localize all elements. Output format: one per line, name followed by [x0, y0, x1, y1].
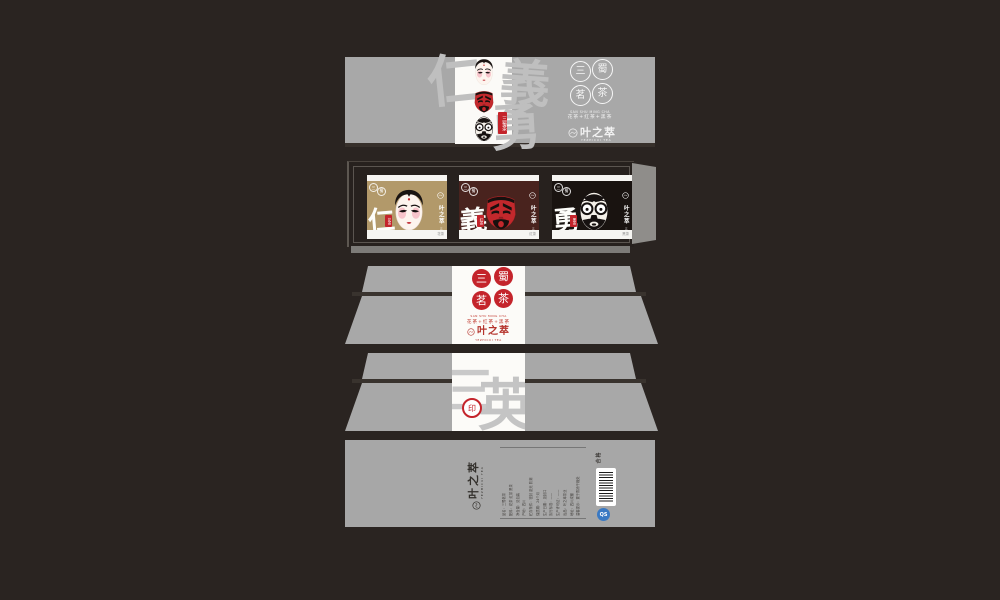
tray-right-side — [632, 163, 656, 244]
brand-seal-icon: 茶 — [494, 289, 513, 308]
corner-seal-icon: 蜀 — [562, 187, 571, 196]
fine-print-line: 出品：叶之萃茶业 — [562, 450, 569, 516]
sleeve-brand-block: 三 蜀 茗 茶 SAN SHU MING CHA 花茶+红茶+黑茶 叶之萃 YE… — [564, 61, 650, 142]
sleeve-panel: 仁 義 勇 三蜀茶 三 蜀 茗 茶 SAN SHU MING CHA 花茶+红茶… — [345, 57, 655, 144]
brand-ring-icon — [622, 192, 629, 199]
box-back-label-strip: 三 英 印 — [452, 353, 525, 431]
corner-seal-icon: 蜀 — [469, 187, 478, 196]
fine-print-block: 品名：三蜀茗茶 配料：花茶 红茶 黑茶 净含量：见包装 产地：四川 贮存条件：密… — [500, 447, 586, 519]
brand-logo-name: 叶之萃 — [468, 460, 479, 499]
brand-seal-icon: 三 — [472, 269, 491, 288]
fine-print-line: 执行标准：—— — [548, 450, 555, 516]
tea-card-black-tea: 三 蜀 義 红茶 叶之萃 三蜀茗茶 红茶 — [459, 175, 539, 239]
watermark-character: 英 — [478, 361, 525, 431]
rotated-brand-logo: 叶之萃 YEZHICUI TEA — [463, 452, 489, 510]
brand-seal-grid: 三 蜀 茗 茶 — [570, 61, 611, 106]
brand-seal-icon: 茗 — [472, 291, 491, 310]
card-footer-text: 黑茶 — [622, 233, 629, 236]
card-body: 三 蜀 勇 黑茶 叶之萃 三蜀茗茶 — [552, 181, 632, 230]
tea-card-flower: 三 蜀 仁 花茶 叶之萃 三蜀茗茶 花茶 — [367, 175, 447, 239]
card-body: 三 蜀 義 红茶 叶之萃 三蜀茗茶 — [459, 181, 539, 230]
brand-logo-name: 叶之萃 — [622, 205, 628, 225]
brand-logo-name: 叶之萃 — [437, 205, 443, 225]
fine-print-line: 保质期：24个月 — [535, 450, 542, 516]
brand-logo-subtext: YEZHICUI TEA — [581, 139, 650, 142]
opera-mask-zhang-icon — [470, 114, 498, 142]
brand-ring-icon — [529, 192, 536, 199]
card-bottom-strip: 红茶 — [459, 230, 539, 239]
fine-print-line: 贮存条件：密封 避光 防潮 — [528, 450, 535, 516]
tea-type-seal: 红茶 — [477, 215, 484, 227]
fine-print-line: 品名：三蜀茗茶 — [501, 450, 508, 516]
brand-seal-icon: 茶 — [592, 83, 613, 104]
red-stamp-icon: 印 — [462, 398, 482, 418]
fine-print-line: 温馨提示：置于阴凉干燥处 — [575, 450, 582, 516]
brand-logo-name: 叶之萃 — [529, 205, 535, 225]
corner-seal-icon: 蜀 — [377, 187, 386, 196]
card-brand-side: 叶之萃 三蜀茗茶 — [620, 184, 630, 230]
brand-logo-name: 叶之萃 — [477, 327, 510, 337]
series-teas-text: 花茶+红茶+黑茶 — [564, 115, 616, 122]
brand-seal-icon: 茗 — [570, 85, 591, 106]
tray-panel: 三 蜀 仁 花茶 叶之萃 三蜀茗茶 花茶 三 蜀 義 — [347, 161, 634, 247]
vertical-red-tag: 三蜀茶 — [498, 112, 507, 134]
brand-ring-icon — [467, 328, 475, 336]
cert-stamp: 合格 — [596, 450, 613, 465]
brand-logo-name: 叶之萃 — [580, 127, 616, 138]
card-footer-text: 红茶 — [529, 233, 536, 236]
barcode — [596, 468, 616, 506]
fine-print-line: 生产日期：见封口 — [542, 450, 549, 516]
opera-mask-dan-icon — [470, 58, 498, 86]
card-body: 三 蜀 仁 花茶 叶之萃 三蜀茗茶 — [367, 181, 447, 230]
packaging-design-canvas: 仁 義 勇 三蜀茶 三 蜀 茗 茶 SAN SHU MING CHA 花茶+红茶… — [0, 0, 1000, 600]
card-brand-side: 叶之萃 三蜀茗茶 — [527, 184, 537, 230]
tea-type-seal: 黑茶 — [570, 215, 577, 227]
tea-type-seal: 花茶 — [385, 215, 392, 227]
box-bottom-panel: 叶之萃 YEZHICUI TEA 品名：三蜀茗茶 配料：花茶 红茶 黑茶 净含量… — [345, 440, 655, 527]
barcode-bars — [599, 472, 613, 502]
series-latin-text: SAN SHU MING CHA — [564, 110, 616, 114]
box-front-label-strip: 三 蜀 茗 茶 SAN SHU MING CHA 花茶+红茶+黑茶 叶之萃 YE… — [452, 266, 525, 344]
fine-print-line: 地址：四川成都 — [569, 450, 576, 516]
brand-logo-subtext: YEZHICUI TEA — [480, 460, 484, 499]
tray-front-edge — [351, 246, 630, 253]
brand-seal-icon: 蜀 — [592, 59, 613, 80]
fine-print-line: 生产许可证：—— — [555, 450, 562, 516]
series-teas-text: 花茶+红茶+黑茶 — [452, 319, 525, 325]
fine-print-line: 配料：花茶 红茶 黑茶 — [508, 450, 515, 516]
brand-logo-subtext: YEZHICUI TEA — [452, 338, 525, 342]
card-bottom-strip: 黑茶 — [552, 230, 632, 239]
brand-ring-icon — [472, 501, 481, 510]
qs-mark-icon: QS — [597, 508, 610, 521]
fine-print-line: 产地：四川 — [521, 450, 528, 516]
brand-seal-icon: 三 — [570, 61, 591, 82]
card-bottom-strip: 花茶 — [367, 230, 447, 239]
opera-mask-guan-icon — [470, 86, 498, 114]
brand-ring-icon — [568, 128, 578, 138]
series-latin-text: SAN SHU MING CHA — [452, 314, 525, 318]
card-brand-side: 叶之萃 三蜀茗茶 — [435, 184, 445, 230]
brand-ring-icon — [437, 192, 444, 199]
tea-card-dark-tea: 三 蜀 勇 黑茶 叶之萃 三蜀茗茶 黑茶 — [552, 175, 632, 239]
cert-stamp-text: 合格 — [596, 450, 613, 465]
brand-seal-grid: 三 蜀 茗 茶 — [472, 269, 513, 310]
brand-seal-icon: 蜀 — [494, 267, 513, 286]
fine-print-line: 净含量：见包装 — [515, 450, 522, 516]
card-footer-text: 花茶 — [437, 233, 444, 236]
